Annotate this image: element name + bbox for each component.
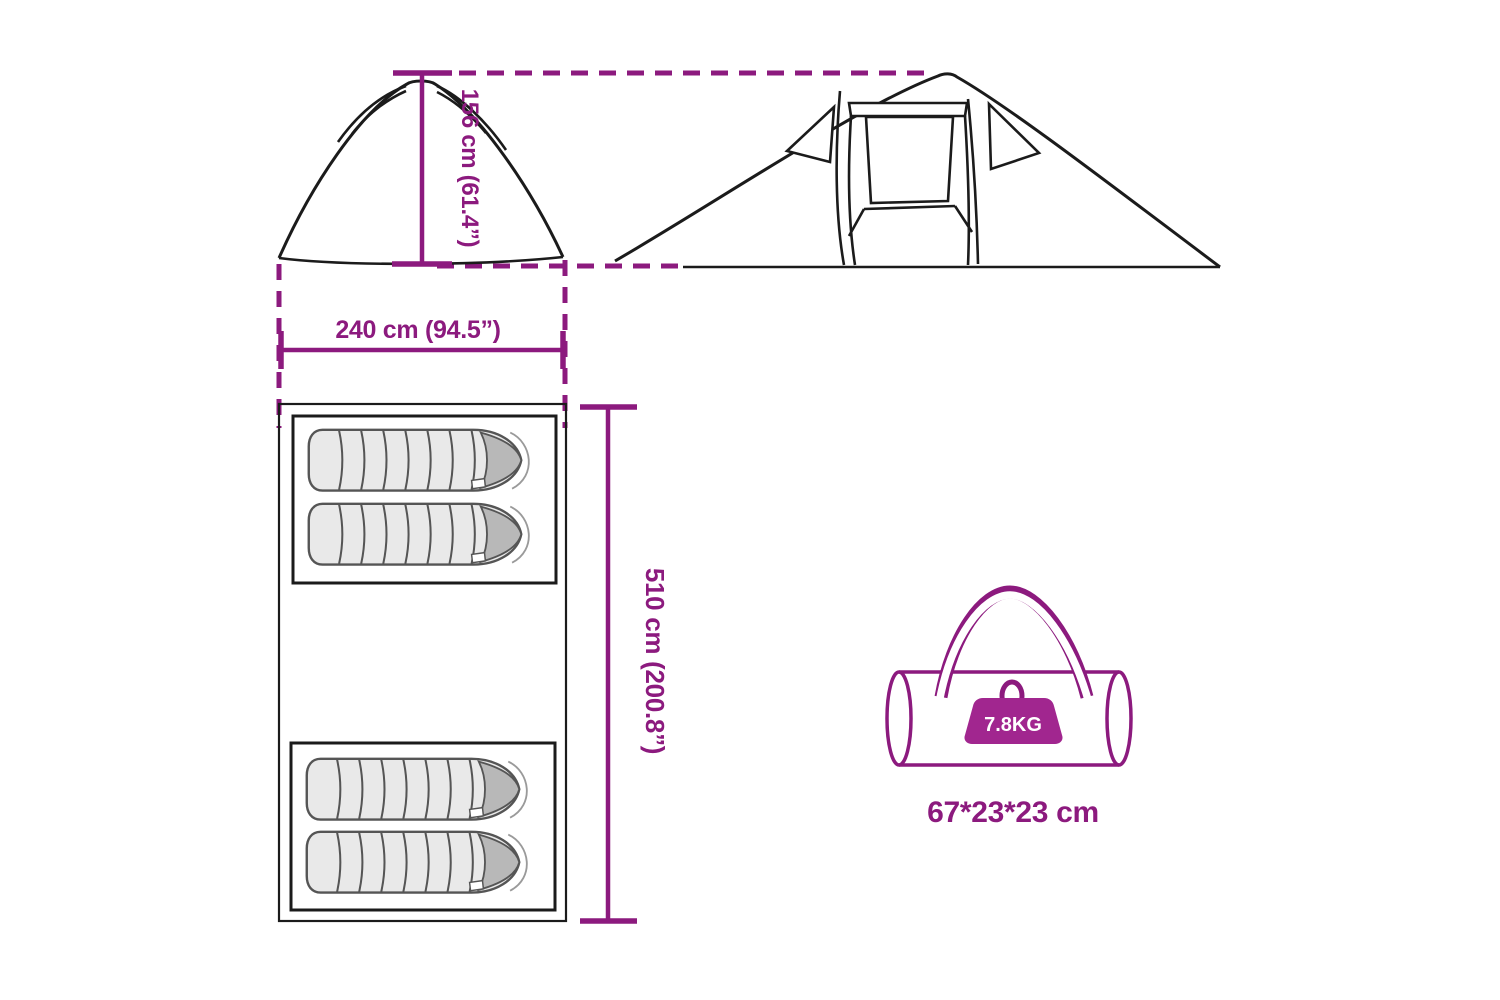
carry-bag: 7.8KG [887,592,1131,765]
floor-plan [279,404,566,921]
tent-dimension-diagram: 156 cm (61.4”) 240 cm (94.5”) [0,0,1500,1000]
sleeping-bag [307,759,527,820]
bag-weight-label: 7.8KG [984,714,1042,736]
side-tent-left-awning [787,107,834,162]
width-dimension-label: 240 cm (94.5”) [335,316,500,344]
side-tent-right-post-inner [965,116,969,265]
side-tent-door-sill [864,206,955,209]
carry-bag-left-end [887,672,911,765]
sleeping-bag [309,504,529,565]
side-tent-left-post-inner [849,116,855,265]
sleeping-bag [307,832,527,893]
side-view-tent [615,74,1220,267]
length-dimension-label: 510 cm (200.8”) [640,568,670,754]
bag-size-label: 67*23*23 cm [927,796,1099,829]
side-tent-left-post [837,91,844,265]
side-tent-door-lintel [849,103,967,116]
carry-bag-right-end [1107,672,1131,765]
side-tent-door-opening [866,117,953,203]
sleeping-bag [309,430,529,491]
length-dimension [580,407,637,921]
height-dimension-label: 156 cm (61.4”) [456,89,483,248]
